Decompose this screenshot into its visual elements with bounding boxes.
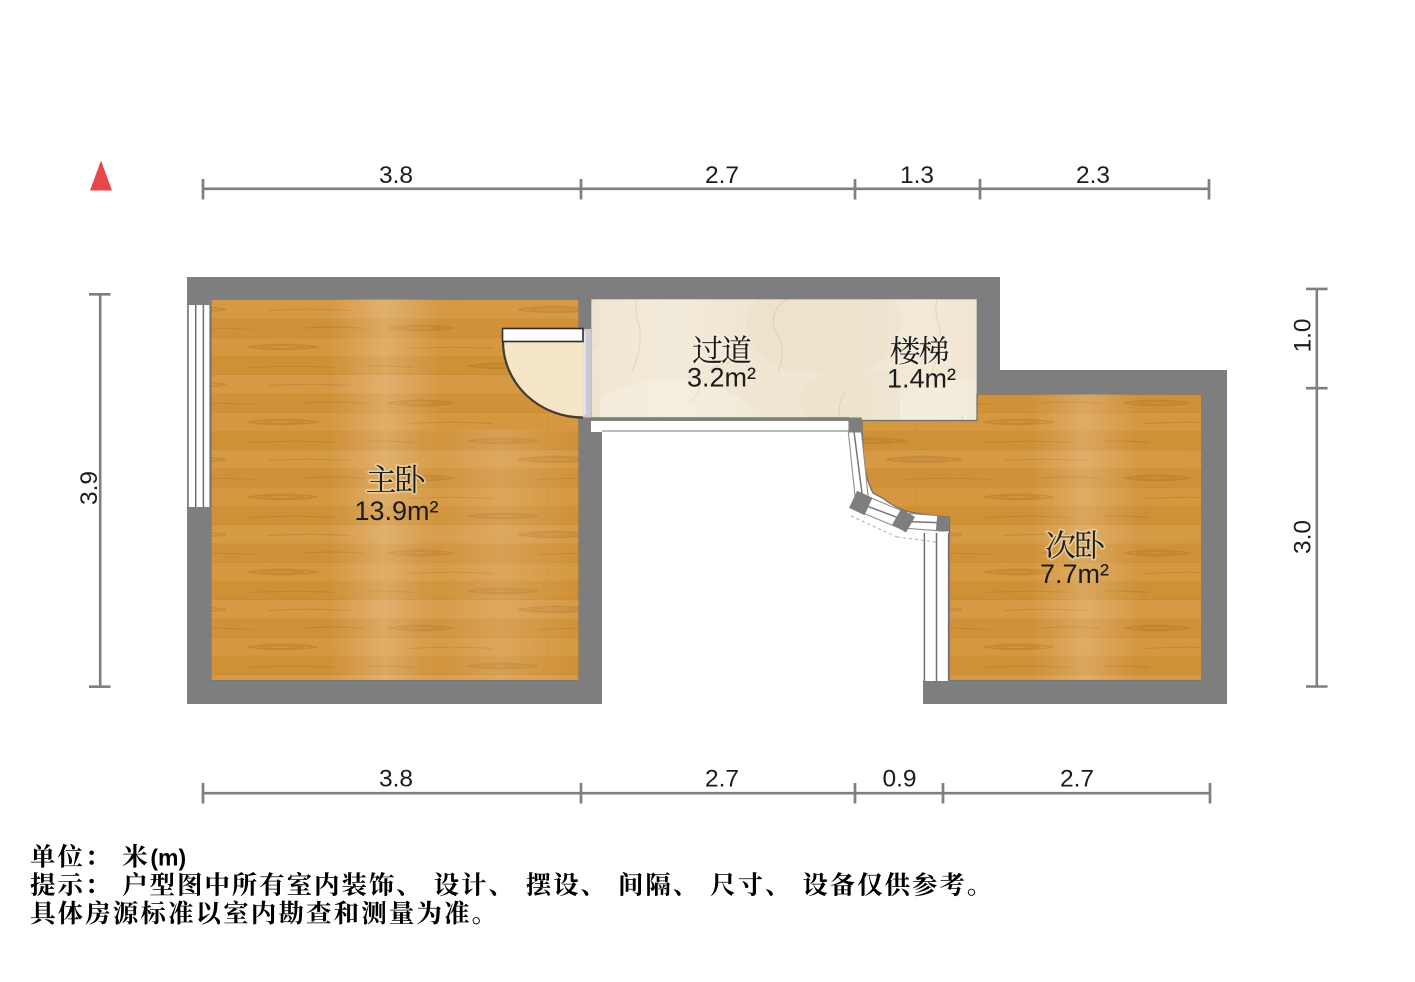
svg-text:13.9m²: 13.9m²	[354, 496, 438, 526]
svg-text:1.0: 1.0	[1290, 318, 1317, 352]
svg-text:2.7: 2.7	[1060, 766, 1094, 793]
svg-text:1.3: 1.3	[900, 162, 934, 189]
svg-text:0.9: 0.9	[882, 766, 916, 793]
svg-text:3.9: 3.9	[76, 471, 103, 505]
svg-text:3.2m²: 3.2m²	[687, 363, 756, 393]
svg-text:2.3: 2.3	[1076, 162, 1110, 189]
svg-text:3.0: 3.0	[1290, 520, 1317, 554]
svg-text:3.8: 3.8	[379, 162, 413, 189]
svg-text:2.7: 2.7	[705, 766, 739, 793]
svg-text:2.7: 2.7	[705, 162, 739, 189]
svg-text:(m): (m)	[150, 845, 186, 871]
svg-text:3.8: 3.8	[379, 766, 413, 793]
svg-text:7.7m²: 7.7m²	[1040, 559, 1109, 589]
svg-text:1.4m²: 1.4m²	[887, 364, 956, 394]
